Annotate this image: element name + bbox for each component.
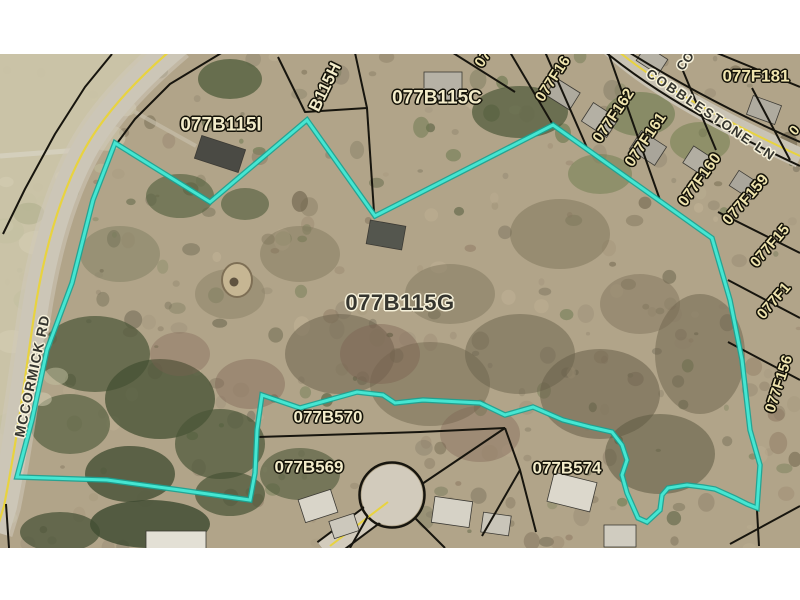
bottom-white-band [0,548,800,600]
pond [222,263,252,297]
aerial-map-canvas[interactable]: 077B115I B115H 077B115C 077B115G 077B570… [0,54,800,548]
parcel-label-b570: 077B570 [293,409,362,426]
parcel-label-b115g-selected: 077B115G [345,292,454,314]
parcel-label-b115c: 077B115C [392,89,482,108]
parcel-label-b115i: 077B115I [180,116,261,135]
top-white-band [0,0,800,54]
parcel-label-f181: 077F181 [722,68,789,85]
gis-map-view: 077B115I B115H 077B115C 077B115G 077B570… [0,0,800,600]
parcel-label-b574: 077B574 [532,460,601,477]
parcel-label-b569: 077B569 [274,459,343,476]
